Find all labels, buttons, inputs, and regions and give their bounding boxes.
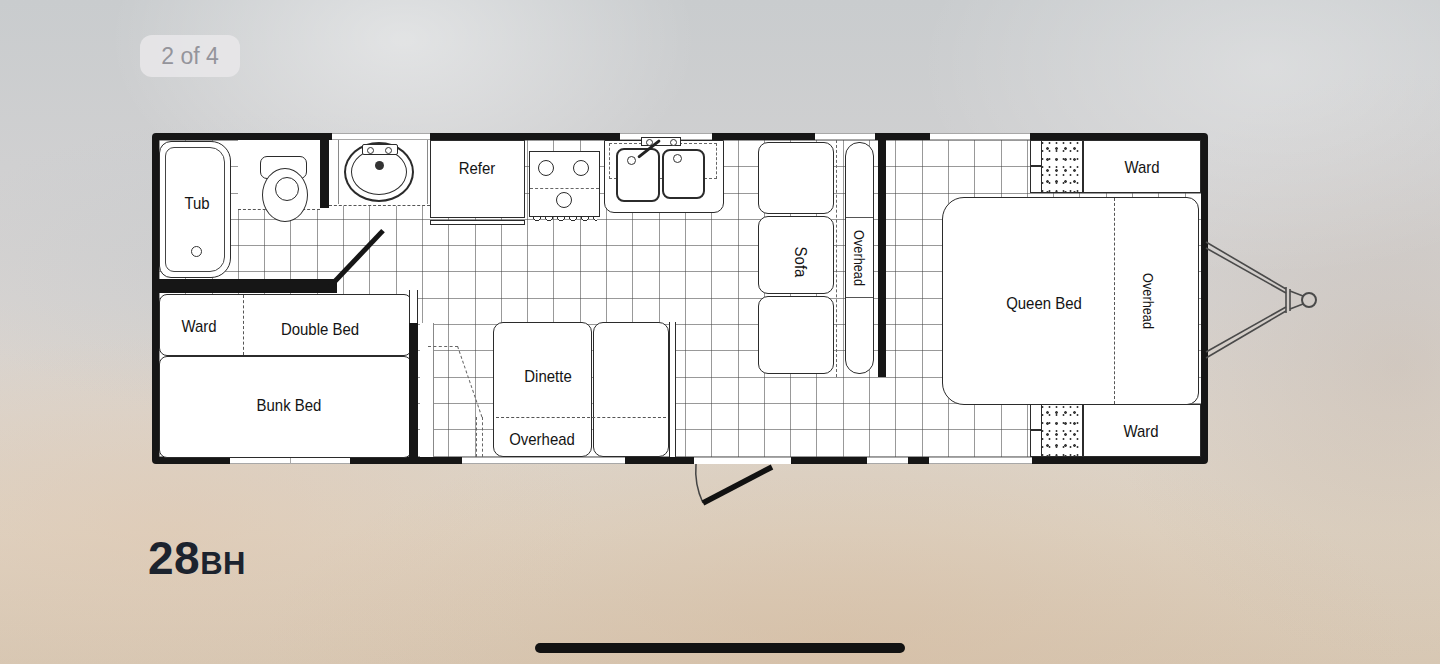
sofa-overhead-label: Overhead xyxy=(851,230,867,286)
window xyxy=(929,457,1032,464)
cabinet-stub xyxy=(1030,404,1042,430)
vanity-side-line xyxy=(338,140,339,204)
model-trim: BH xyxy=(200,546,246,581)
window xyxy=(930,133,1030,140)
overhead-divider xyxy=(846,217,873,218)
bed-overhead-label: Overhead xyxy=(1140,273,1156,329)
model-number: 28 xyxy=(148,532,200,584)
queen-bed-label: Queen Bed xyxy=(1006,294,1082,314)
stove-burner xyxy=(538,160,554,176)
slideout-dashed-line xyxy=(836,140,838,377)
double-bed-label: Double Bed xyxy=(281,320,359,340)
ward-top-label: Ward xyxy=(1124,158,1159,178)
dinette-overhead-label: Overhead xyxy=(509,430,575,450)
step-dashed-line xyxy=(428,346,458,347)
dinette-bench-back xyxy=(420,323,434,457)
refer-label: Refer xyxy=(459,159,496,179)
home-indicator[interactable] xyxy=(535,643,905,653)
wardrobe-mirror-bottom xyxy=(1041,404,1083,457)
ward-bunk-label: Ward xyxy=(181,317,216,337)
cabinet-stub xyxy=(1030,140,1042,166)
window xyxy=(867,457,908,464)
bunk-bed-label: Bunk Bed xyxy=(257,396,322,416)
cabinet-stub xyxy=(1030,430,1042,457)
stove-scallop-edge xyxy=(531,217,597,223)
photo-counter-text: 2 of 4 xyxy=(161,43,219,70)
bath-sink-basin xyxy=(351,149,407,195)
bedroom-divider-wall xyxy=(878,140,886,377)
dinette-end-wall xyxy=(669,322,676,457)
floorplan-model-name: 28BH xyxy=(148,531,246,585)
tub-drain xyxy=(191,246,202,257)
floorplan-trailer-body: Tub Refer Sofa Overhead xyxy=(152,133,1208,464)
stove xyxy=(529,151,600,217)
ward-bottom-label: Ward xyxy=(1123,422,1158,442)
trailer-hitch xyxy=(1206,237,1326,363)
wardrobe-mirror-top xyxy=(1041,140,1083,193)
photo-counter-badge: 2 of 4 xyxy=(140,35,240,77)
cabinet-stub xyxy=(1030,166,1042,193)
bath-faucet-spout xyxy=(375,161,384,170)
step-dashed-vertical xyxy=(476,417,483,457)
refrigerator-ledge xyxy=(430,220,525,225)
kitchen-sink-right xyxy=(662,149,705,199)
window xyxy=(462,457,625,464)
bath-faucet-handle xyxy=(367,147,374,154)
toilet-seat-ring xyxy=(275,177,299,201)
bath-faucet-handle xyxy=(385,147,392,154)
kitchen-faucet-screw xyxy=(670,139,677,146)
tub-label: Tub xyxy=(184,194,209,214)
stove-dashed-line xyxy=(530,188,599,189)
bathroom-wall xyxy=(320,140,329,208)
window xyxy=(815,133,875,140)
entry-door xyxy=(688,450,793,512)
sink-drain xyxy=(627,156,636,165)
dinette-label: Dinette xyxy=(524,367,571,387)
queen-bed-center-dashed xyxy=(1114,198,1115,404)
bedroom-wall-thin xyxy=(409,290,418,325)
dinette-bench xyxy=(593,322,669,457)
window xyxy=(332,133,430,140)
refrigerator xyxy=(430,140,525,218)
bathroom-partition-wall xyxy=(159,279,337,293)
sofa-cushion xyxy=(758,296,834,374)
sofa-cushion xyxy=(758,142,834,214)
sofa-label: Sofa xyxy=(790,247,810,278)
stove-burner xyxy=(556,192,572,208)
ward-divider-dashed xyxy=(243,295,244,355)
dinette-overhead-dashed xyxy=(496,417,666,418)
stove-burner xyxy=(573,160,589,176)
bunkroom-wall xyxy=(409,323,418,457)
sink-drain xyxy=(673,154,682,163)
window-divider xyxy=(290,457,291,464)
vanity-side-line xyxy=(427,140,428,204)
overhead-divider xyxy=(846,297,873,298)
